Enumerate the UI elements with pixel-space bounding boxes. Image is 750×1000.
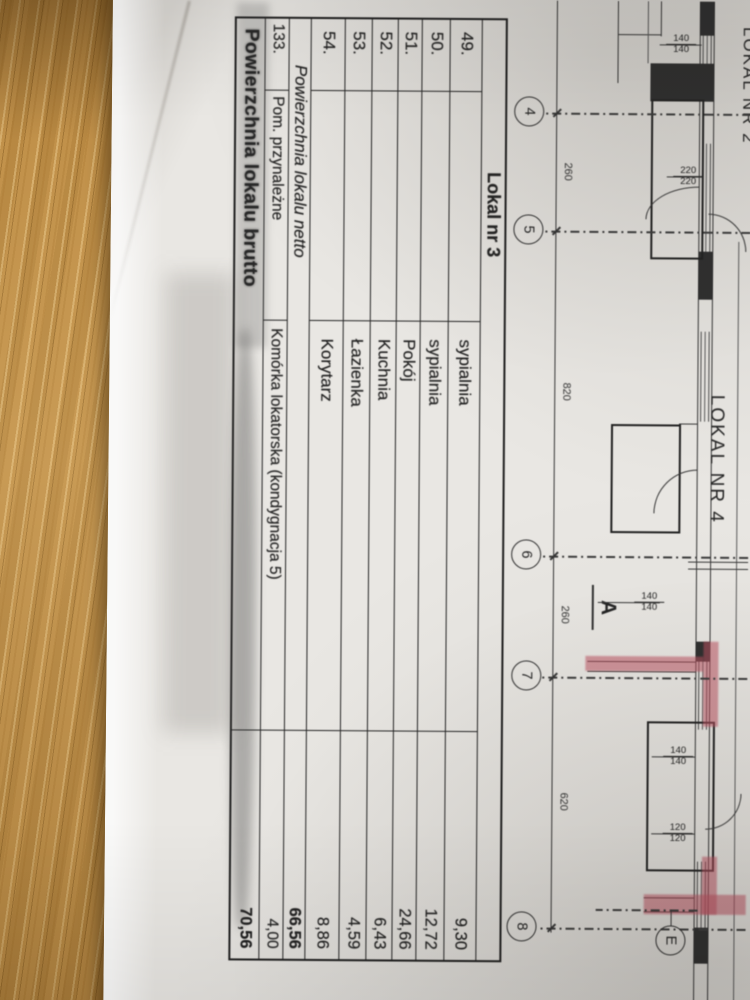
toner-smudge (163, 273, 236, 733)
cell-area: 12,72 (416, 731, 446, 961)
cell-room: sypialnia (446, 321, 481, 731)
dim-value: 140 (641, 602, 657, 613)
grid-axis-line (544, 231, 750, 234)
brutto-label: Powierzchnia lokalu brutto (231, 17, 266, 729)
dimension-label: 820 (560, 370, 572, 414)
red-highlight-wall (703, 642, 719, 727)
grid-connector (671, 909, 672, 926)
interior-wall (648, 1, 649, 63)
dimension-label: 140140 (666, 34, 696, 55)
cell-room: Korytarz (307, 320, 344, 730)
cell-no: 50. (422, 19, 451, 91)
cell-area: 4,59 (339, 730, 368, 960)
interior-wall (679, 424, 698, 425)
photo-of-floor-plan-document: LOKAL NR 2 LOKAL NR 4 A 140140 220220 14… (0, 0, 750, 1000)
dim-value: 140 (673, 44, 689, 55)
cell-room: Pokój (394, 321, 421, 731)
grid-bubble-5: 5 (513, 214, 543, 244)
grid-axis-line (545, 113, 750, 116)
grid-bubble-7: 7 (511, 660, 541, 690)
cell-room: Kuchnia (368, 320, 397, 730)
dim-value: 220 (680, 176, 696, 187)
annex-value: 4,00 (259, 730, 285, 960)
dimension-label: 620 (557, 780, 569, 824)
interior-wall (661, 1, 662, 36)
apartment-label-lokal-2: LOKAL NR 2 (738, 27, 750, 145)
apartment-label-lokal-4: LOKAL NR 4 (704, 395, 727, 524)
dimension-label: 220220 (673, 166, 703, 187)
brutto-value: 70,56 (229, 729, 261, 959)
dim-value: 140 (670, 756, 686, 767)
dimension-label: 140140 (634, 592, 664, 613)
cell-area: 24,66 (392, 731, 418, 961)
cell-blank (449, 91, 483, 321)
table-row: 54. Korytarz 8,86 (305, 18, 346, 960)
dimension-label: 260 (562, 150, 574, 194)
cell-room: sypialnia (418, 321, 449, 731)
netto-value: 66,56 (283, 730, 307, 960)
grid-axis-line (541, 677, 747, 680)
area-table: Lokal nr 3 49. sypialnia 9,30 50. sypial… (228, 16, 508, 962)
cell-no: 49. (450, 19, 483, 91)
dimension-label: 260 (559, 593, 571, 637)
annex-label: Pom. przynależne (264, 90, 290, 320)
grid-bubble-6: 6 (511, 539, 541, 569)
cell-room: Łazienka (341, 320, 371, 730)
wall-pier (650, 63, 714, 101)
cell-area: 8,86 (305, 730, 341, 960)
table-row: 49. sypialnia 9,30 (444, 19, 483, 961)
grid-axis-line (538, 928, 746, 931)
wall-line (733, 242, 739, 1000)
floor-plan: LOKAL NR 2 LOKAL NR 4 A 140140 220220 14… (497, 0, 750, 1000)
dimension-label: 140140 (663, 746, 693, 767)
door-arc (705, 794, 741, 830)
grid-bubble-8: 8 (506, 911, 536, 941)
interior-wall (619, 34, 662, 35)
wall-pier (700, 2, 715, 36)
cell-blank (310, 90, 346, 320)
cell-no: 52. (372, 18, 399, 90)
cell-blank (371, 90, 399, 320)
red-highlight-wall (585, 656, 703, 672)
section-marker-a: A (592, 585, 620, 630)
grid-bubble-e: E (655, 925, 685, 955)
cell-blank (344, 90, 373, 320)
cell-area: 9,30 (444, 731, 478, 961)
grid-bubble-4: 4 (514, 96, 544, 126)
cell-no: 51. (398, 19, 423, 91)
grid-axis-line (542, 556, 748, 559)
cell-blank (421, 91, 451, 321)
cell-no: 133. (265, 18, 290, 90)
cell-area: 6,43 (366, 730, 394, 960)
cell-no: 54. (311, 18, 346, 90)
rotated-document-page: LOKAL NR 2 LOKAL NR 4 A 140140 220220 14… (105, 0, 750, 1000)
dim-value: 120 (670, 833, 686, 844)
cell-no: 53. (345, 18, 373, 90)
annex-room: Komórka lokatorska (kondygnacja 5) (261, 320, 288, 730)
cell-blank (397, 91, 423, 321)
dimension-label: 120120 (663, 823, 693, 844)
wall-pier (693, 928, 708, 964)
red-highlight-wall (644, 894, 746, 915)
interior-wall (617, 1, 619, 83)
